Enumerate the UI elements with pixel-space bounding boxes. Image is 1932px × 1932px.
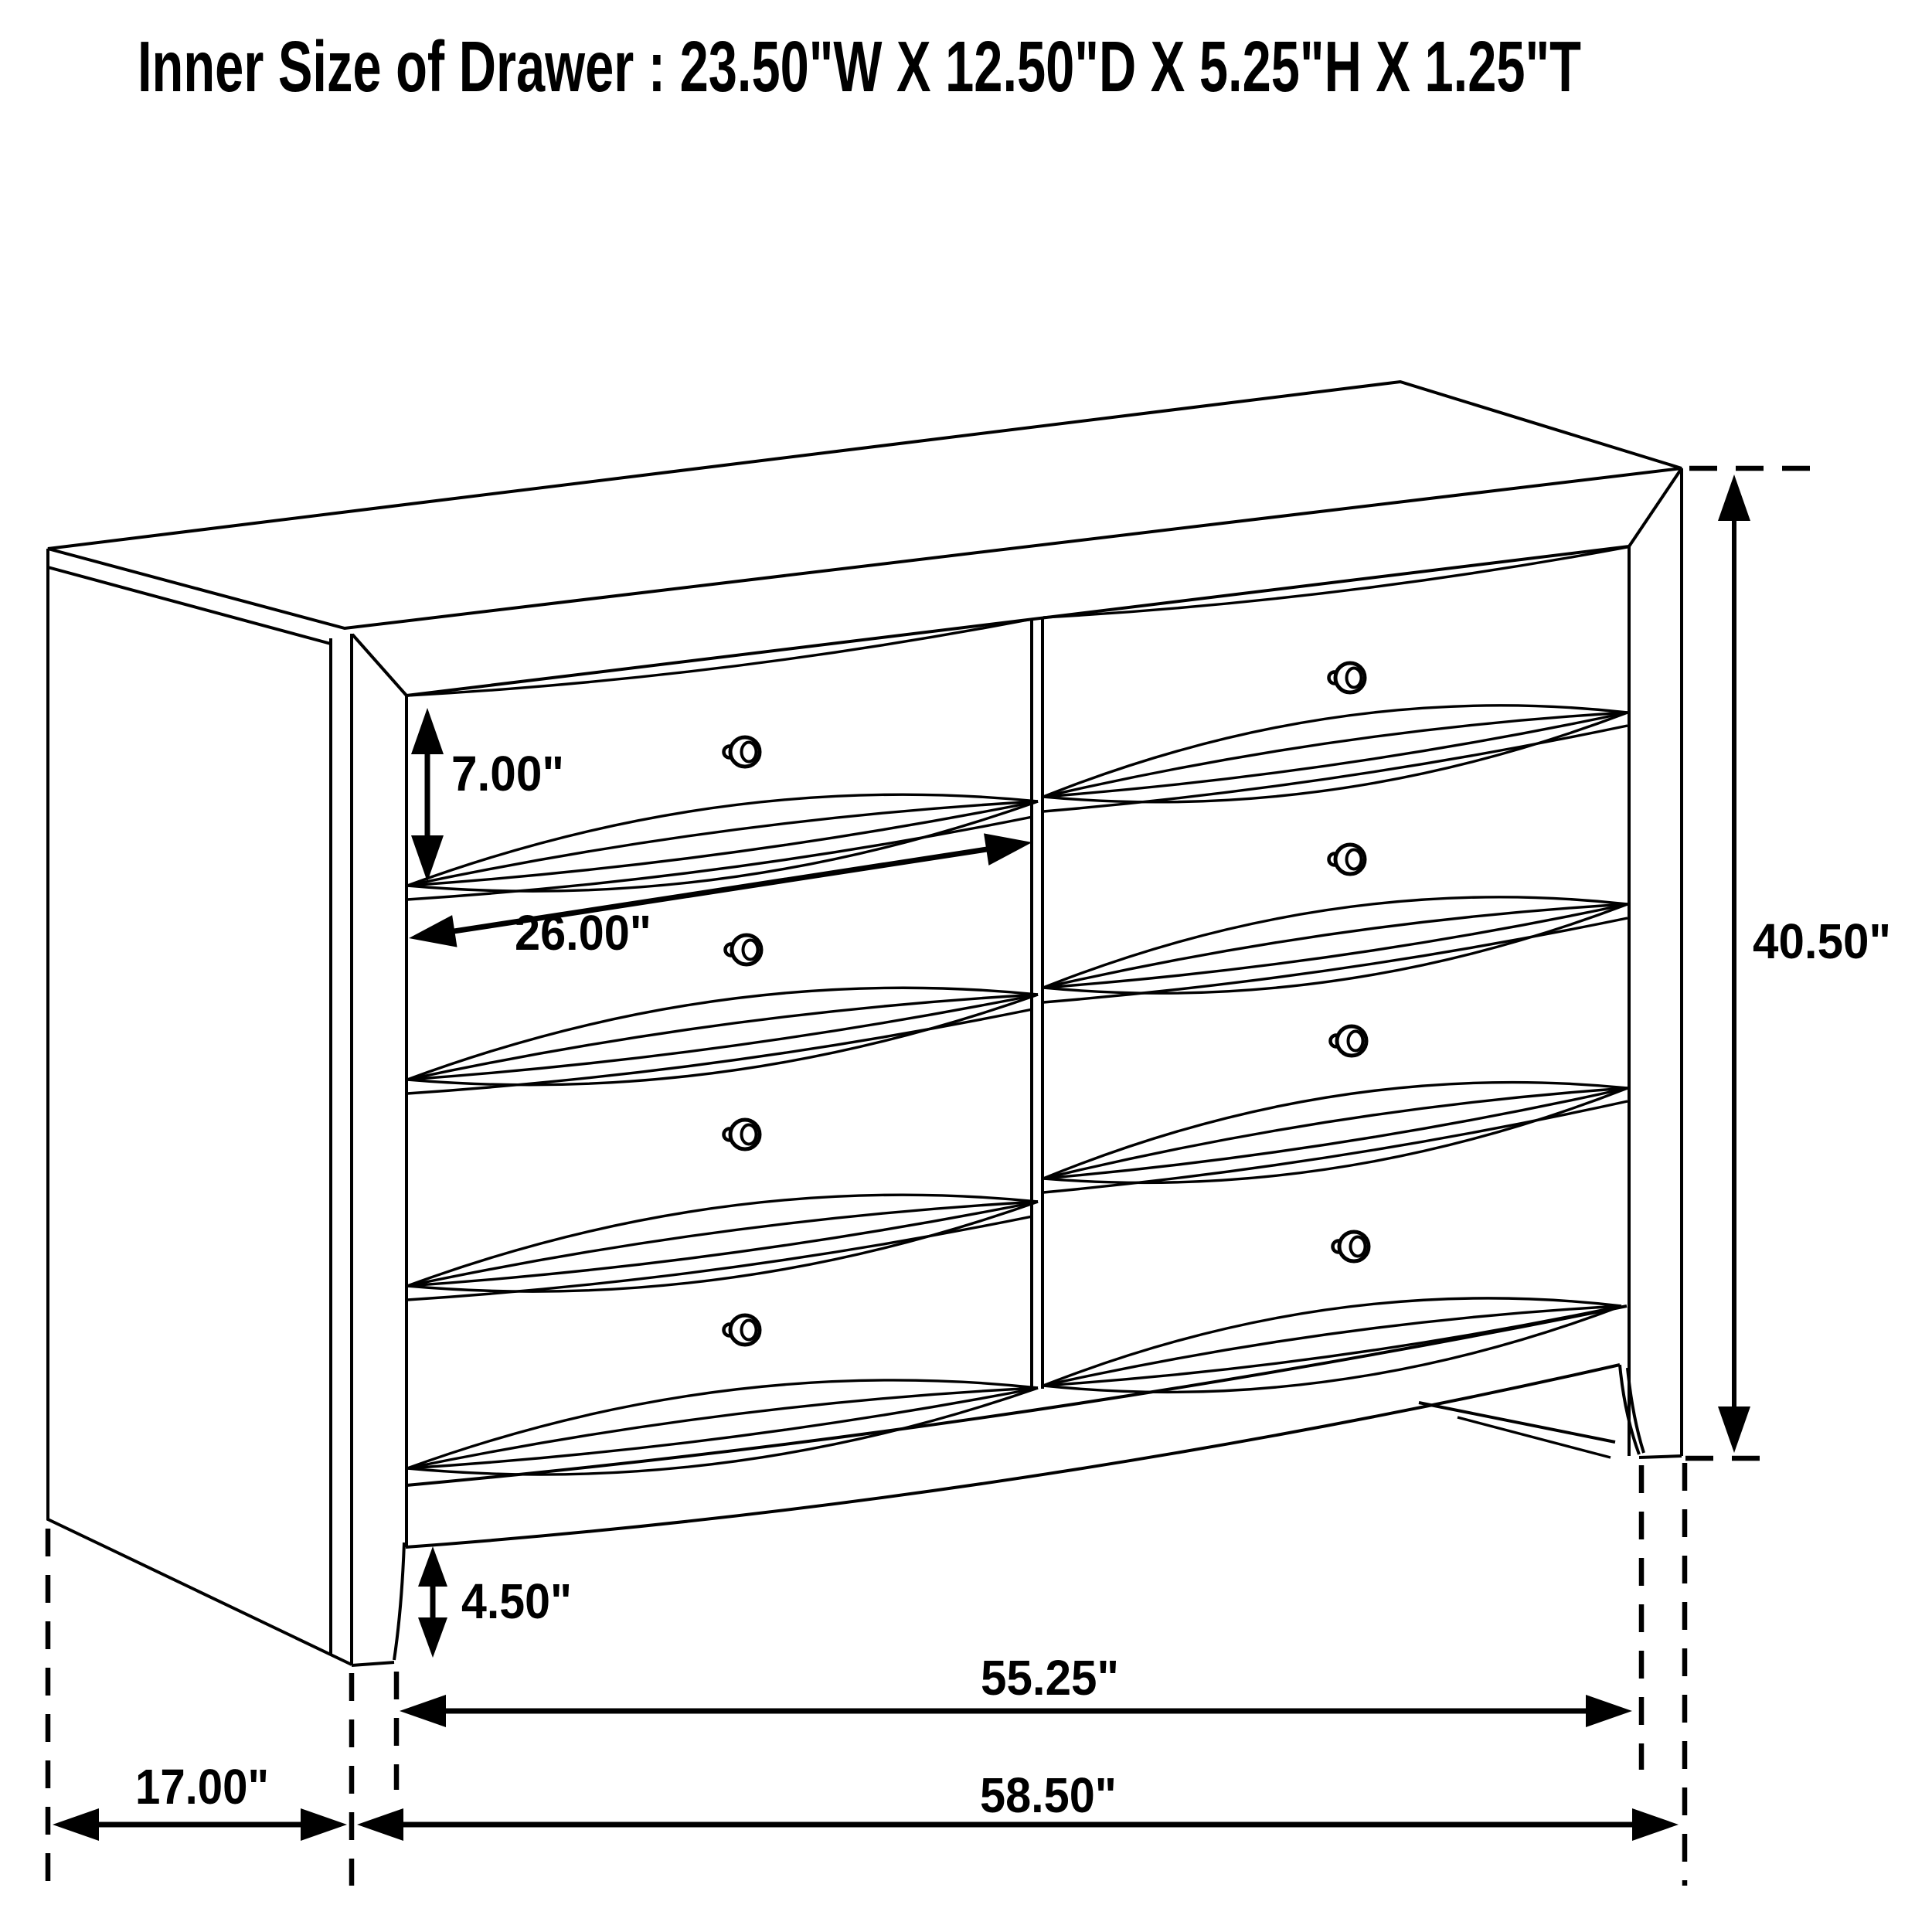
svg-text:17.00": 17.00" [135, 1759, 269, 1815]
svg-text:7.00": 7.00" [451, 746, 564, 801]
svg-text:40.50": 40.50" [1753, 913, 1891, 969]
svg-text:26.00": 26.00" [515, 905, 651, 961]
svg-text:55.25": 55.25" [981, 1650, 1119, 1706]
svg-text:Inner Size of Drawer : 23.50"W: Inner Size of Drawer : 23.50"W X 12.50"D… [138, 26, 1581, 107]
svg-text:58.50": 58.50" [980, 1767, 1117, 1823]
svg-text:4.50": 4.50" [461, 1573, 572, 1629]
